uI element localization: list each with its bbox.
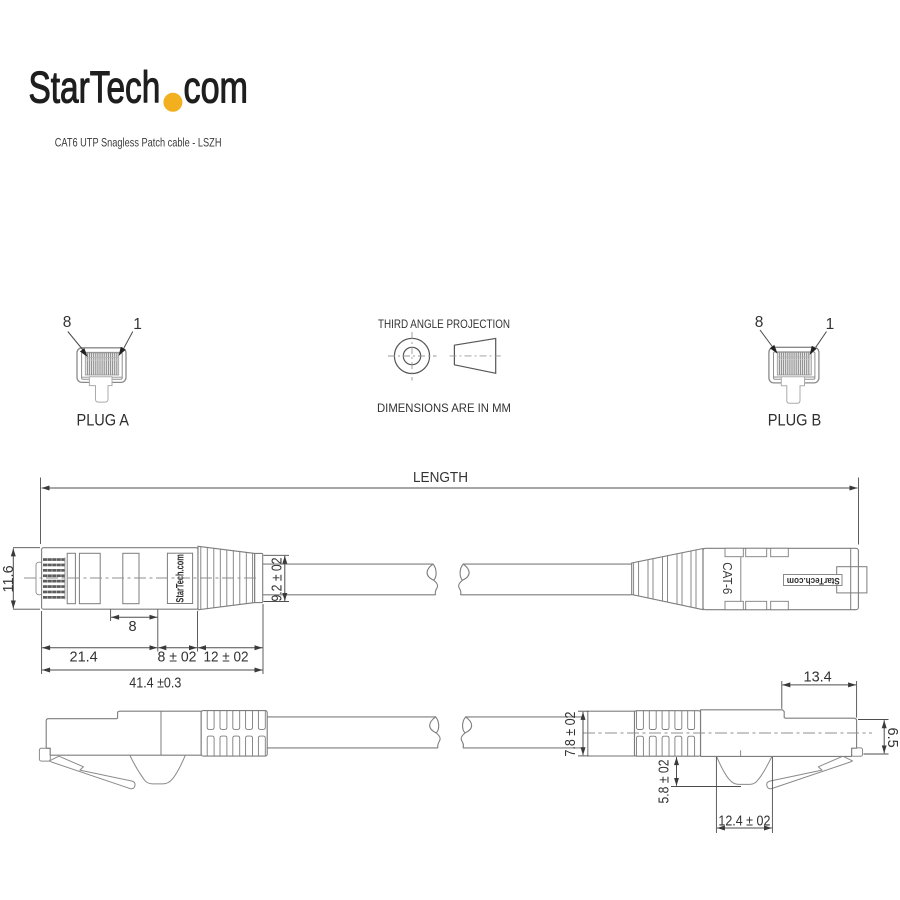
svg-text:9.2 ± 02: 9.2 ± 02 [270,558,286,602]
svg-text:CAT-6: CAT-6 [720,562,735,594]
svg-text:11.6: 11.6 [1,565,17,592]
svg-text:StarTech.com: StarTech.com [787,575,840,586]
svg-text:6.5: 6.5 [884,728,900,748]
svg-text:PLUG B: PLUG B [768,412,822,430]
svg-text:8: 8 [755,314,764,331]
svg-text:7.8 ± 02: 7.8 ± 02 [563,712,579,757]
svg-text:THIRD ANGLE PROJECTION: THIRD ANGLE PROJECTION [378,318,510,331]
svg-text:12.4 ± 02: 12.4 ± 02 [718,813,770,829]
svg-text:8: 8 [129,619,137,635]
svg-text:13.4: 13.4 [804,670,832,686]
svg-text:StarTech: StarTech [29,64,161,113]
svg-text:1: 1 [826,316,835,333]
svg-text:com: com [184,64,249,113]
svg-text:21.4: 21.4 [70,650,98,666]
svg-text:1: 1 [133,316,142,333]
svg-text:41.4 ±0.3: 41.4 ±0.3 [129,675,181,691]
svg-text:CAT6 UTP Snagless Patch cable: CAT6 UTP Snagless Patch cable - LSZH [55,135,222,149]
svg-text:DIMENSIONS ARE IN MM: DIMENSIONS ARE IN MM [377,402,511,415]
svg-text:5.8 ± 02: 5.8 ± 02 [656,760,672,804]
svg-text:8 ± 02: 8 ± 02 [158,650,197,666]
svg-text:LENGTH: LENGTH [413,469,468,486]
svg-text:PLUG A: PLUG A [77,411,130,429]
svg-text:12 ± 02: 12 ± 02 [204,650,249,666]
svg-text:8: 8 [63,314,72,331]
